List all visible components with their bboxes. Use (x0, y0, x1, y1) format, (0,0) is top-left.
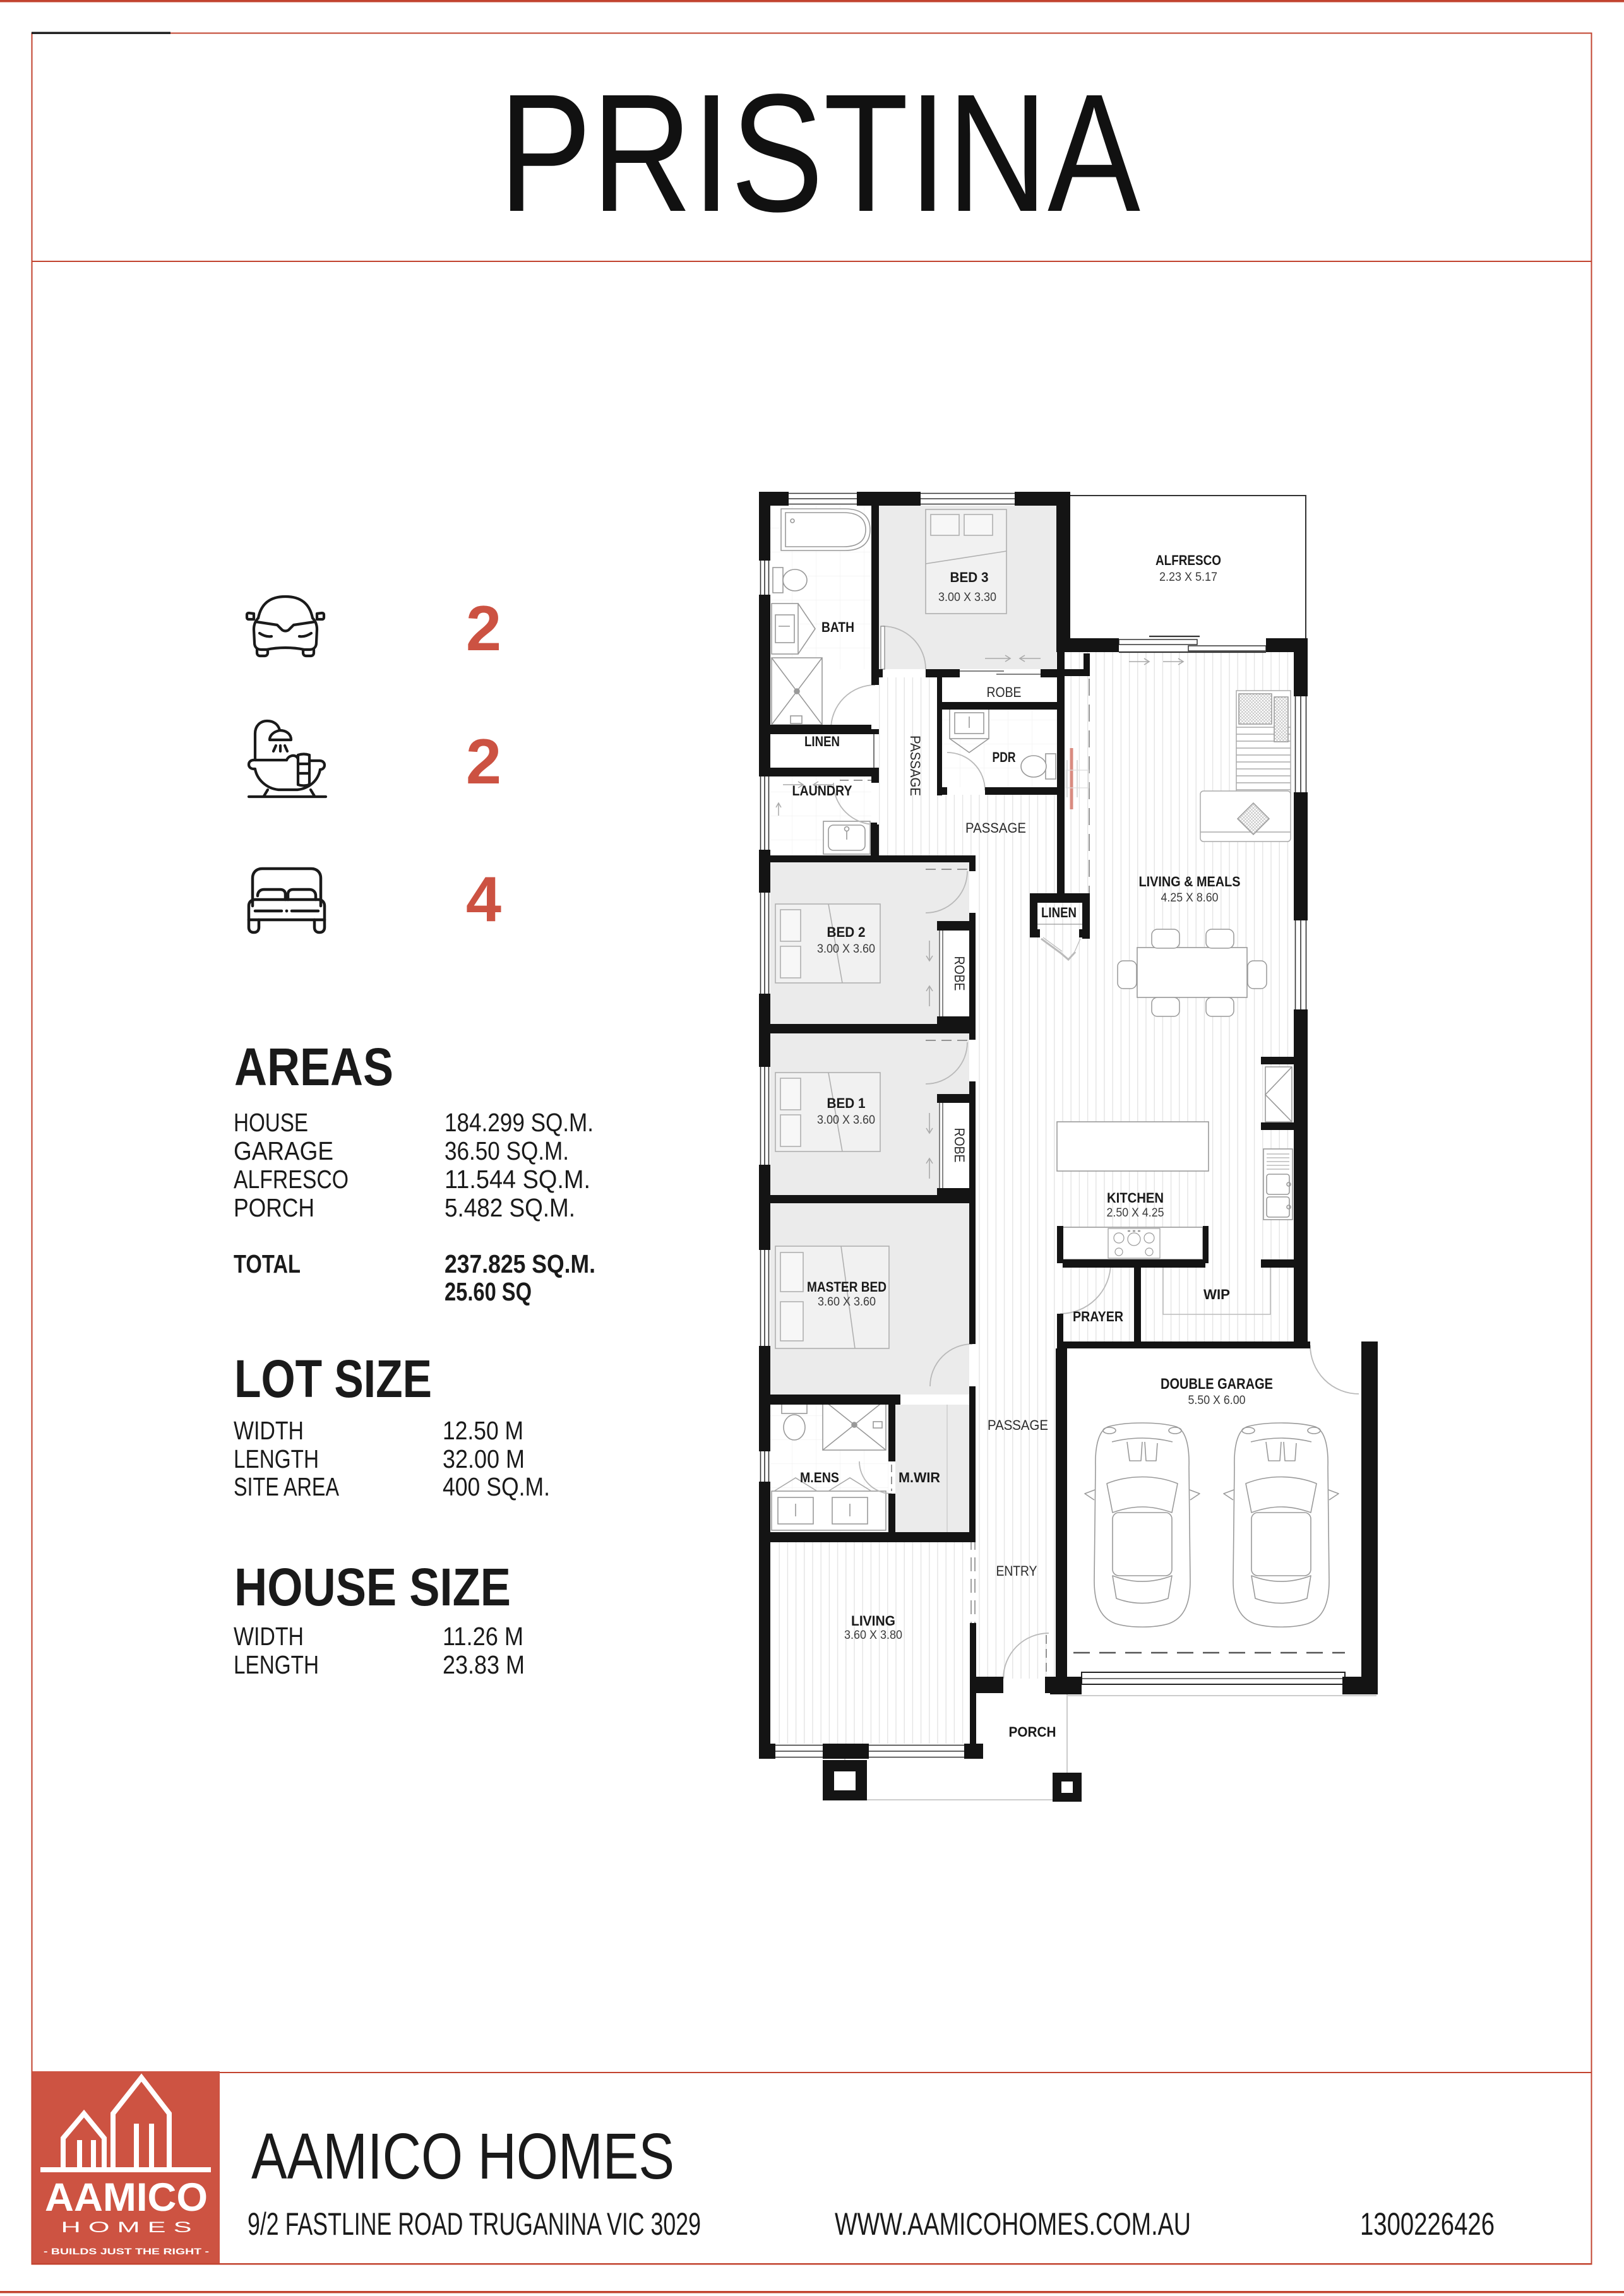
svg-text:LINEN: LINEN (1041, 905, 1077, 920)
svg-text:BED 2: BED 2 (827, 924, 866, 940)
svg-text:237.825 SQ.M.: 237.825 SQ.M. (445, 1249, 595, 1278)
svg-text:PASSAGE: PASSAGE (907, 735, 923, 796)
svg-text:M.ENS: M.ENS (800, 1470, 839, 1485)
svg-text:LOT SIZE: LOT SIZE (234, 1349, 432, 1408)
svg-text:ENTRY: ENTRY (996, 1563, 1037, 1579)
svg-text:WIDTH: WIDTH (234, 1416, 304, 1445)
svg-text:BED 1: BED 1 (827, 1095, 866, 1111)
svg-text:AREAS: AREAS (234, 1037, 393, 1097)
svg-text:- BUILDS JUST THE RIGHT -: - BUILDS JUST THE RIGHT - (44, 2246, 209, 2256)
svg-text:LENGTH: LENGTH (234, 1650, 319, 1679)
svg-text:PASSAGE: PASSAGE (988, 1417, 1048, 1433)
svg-text:HOUSE: HOUSE (234, 1108, 308, 1137)
svg-text:9/2 FASTLINE ROAD TRUGANINA VI: 9/2 FASTLINE ROAD TRUGANINA VIC 3029 (248, 2206, 701, 2242)
svg-text:1300226426: 1300226426 (1360, 2206, 1495, 2242)
svg-text:4: 4 (466, 864, 501, 935)
svg-text:PDR: PDR (993, 749, 1016, 765)
svg-text:DOUBLE GARAGE: DOUBLE GARAGE (1161, 1376, 1273, 1393)
svg-text:3.60 X 3.80: 3.60 X 3.80 (844, 1629, 902, 1642)
svg-text:36.50 SQ.M.: 36.50 SQ.M. (445, 1136, 569, 1165)
svg-text:PASSAGE: PASSAGE (965, 820, 1026, 836)
svg-text:3.00 X 3.60: 3.00 X 3.60 (817, 1114, 875, 1127)
svg-text:2.23 X 5.17: 2.23 X 5.17 (1159, 571, 1217, 584)
svg-text:WWW.AAMICOHOMES.COM.AU: WWW.AAMICOHOMES.COM.AU (835, 2206, 1191, 2242)
svg-text:2: 2 (466, 727, 501, 797)
svg-text:4.25 X 8.60: 4.25 X 8.60 (1161, 891, 1219, 905)
svg-text:12.50 M: 12.50 M (443, 1416, 523, 1445)
svg-text:LENGTH: LENGTH (234, 1444, 319, 1473)
svg-text:PORCH: PORCH (234, 1193, 314, 1222)
svg-text:ROBE: ROBE (952, 956, 967, 991)
svg-text:PRISTINA: PRISTINA (499, 59, 1141, 247)
svg-text:WIDTH: WIDTH (234, 1622, 304, 1651)
svg-text:WIP: WIP (1203, 1287, 1230, 1302)
svg-text:GARAGE: GARAGE (234, 1136, 333, 1165)
svg-text:TOTAL: TOTAL (234, 1249, 301, 1278)
svg-text:ROBE: ROBE (987, 684, 1022, 700)
svg-text:KITCHEN: KITCHEN (1107, 1190, 1164, 1206)
svg-text:LIVING & MEALS: LIVING & MEALS (1139, 874, 1241, 889)
svg-text:ALFRESCO: ALFRESCO (234, 1165, 349, 1194)
svg-text:AAMICO HOMES: AAMICO HOMES (251, 2120, 674, 2192)
svg-text:5.482 SQ.M.: 5.482 SQ.M. (445, 1193, 575, 1222)
svg-text:25.60 SQ: 25.60 SQ (445, 1277, 532, 1306)
svg-text:AAMICO: AAMICO (45, 2175, 208, 2220)
svg-text:32.00 M: 32.00 M (443, 1444, 525, 1473)
svg-text:ALFRESCO: ALFRESCO (1155, 552, 1221, 568)
svg-text:400 SQ.M.: 400 SQ.M. (443, 1472, 550, 1501)
svg-text:PORCH: PORCH (1009, 1724, 1056, 1740)
svg-text:ROBE: ROBE (952, 1128, 967, 1163)
svg-text:HOUSE SIZE: HOUSE SIZE (234, 1557, 511, 1617)
svg-text:5.50 X 6.00: 5.50 X 6.00 (1188, 1394, 1246, 1407)
svg-text:3.00 X 3.30: 3.00 X 3.30 (938, 591, 996, 604)
svg-text:MASTER BED: MASTER BED (807, 1279, 887, 1295)
svg-text:LAUNDRY: LAUNDRY (792, 783, 852, 799)
svg-text:23.83 M: 23.83 M (443, 1650, 525, 1679)
svg-text:11.26 M: 11.26 M (443, 1622, 523, 1651)
svg-text:2: 2 (466, 593, 501, 664)
svg-text:11.544 SQ.M.: 11.544 SQ.M. (445, 1165, 590, 1194)
svg-text:PRAYER: PRAYER (1073, 1309, 1123, 1324)
svg-text:LINEN: LINEN (804, 734, 840, 749)
svg-text:BED 3: BED 3 (950, 569, 989, 585)
svg-text:BATH: BATH (821, 619, 854, 635)
svg-text:M.WIR: M.WIR (899, 1470, 940, 1485)
svg-text:3.00 X 3.60: 3.00 X 3.60 (817, 943, 875, 956)
svg-text:2.50 X 4.25: 2.50 X 4.25 (1107, 1206, 1164, 1220)
svg-text:3.60 X 3.60: 3.60 X 3.60 (818, 1295, 876, 1309)
svg-text:184.299 SQ.M.: 184.299 SQ.M. (445, 1108, 594, 1137)
svg-text:H O M E S: H O M E S (61, 2219, 192, 2236)
svg-text:SITE AREA: SITE AREA (234, 1472, 340, 1501)
svg-text:LIVING: LIVING (851, 1613, 895, 1629)
